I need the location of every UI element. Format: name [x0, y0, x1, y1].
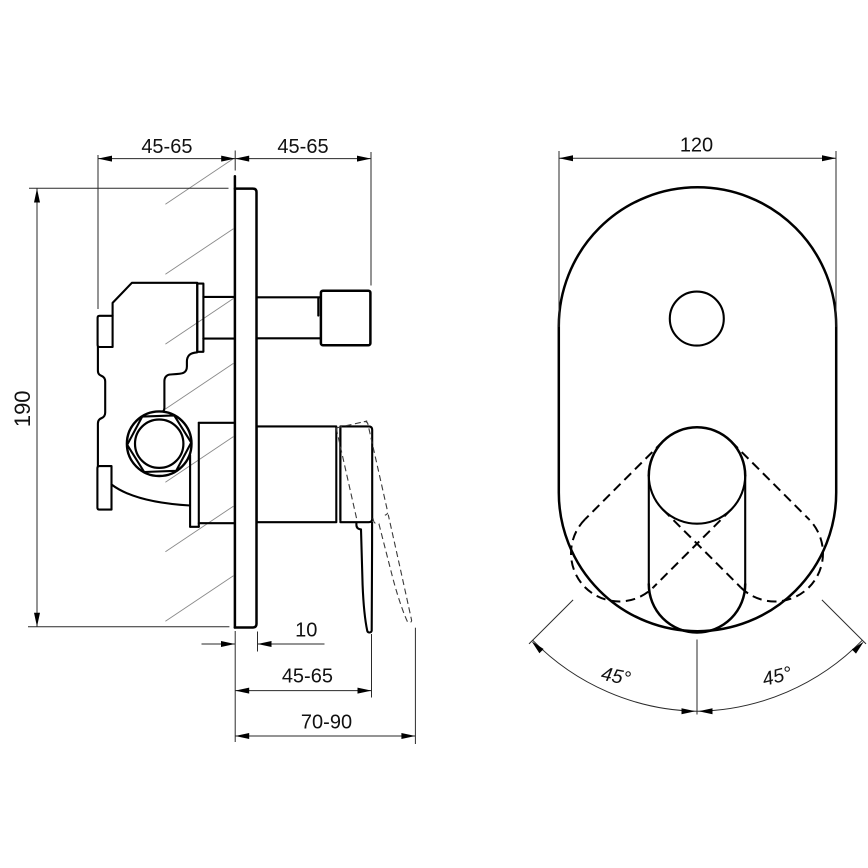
svg-text:190: 190: [10, 390, 35, 427]
svg-text:10: 10: [295, 619, 317, 641]
svg-text:45-65: 45-65: [277, 136, 328, 158]
svg-text:70-90: 70-90: [301, 711, 352, 733]
svg-text:45-65: 45-65: [282, 666, 333, 688]
svg-text:120: 120: [680, 134, 713, 156]
svg-text:45-65: 45-65: [141, 136, 192, 158]
